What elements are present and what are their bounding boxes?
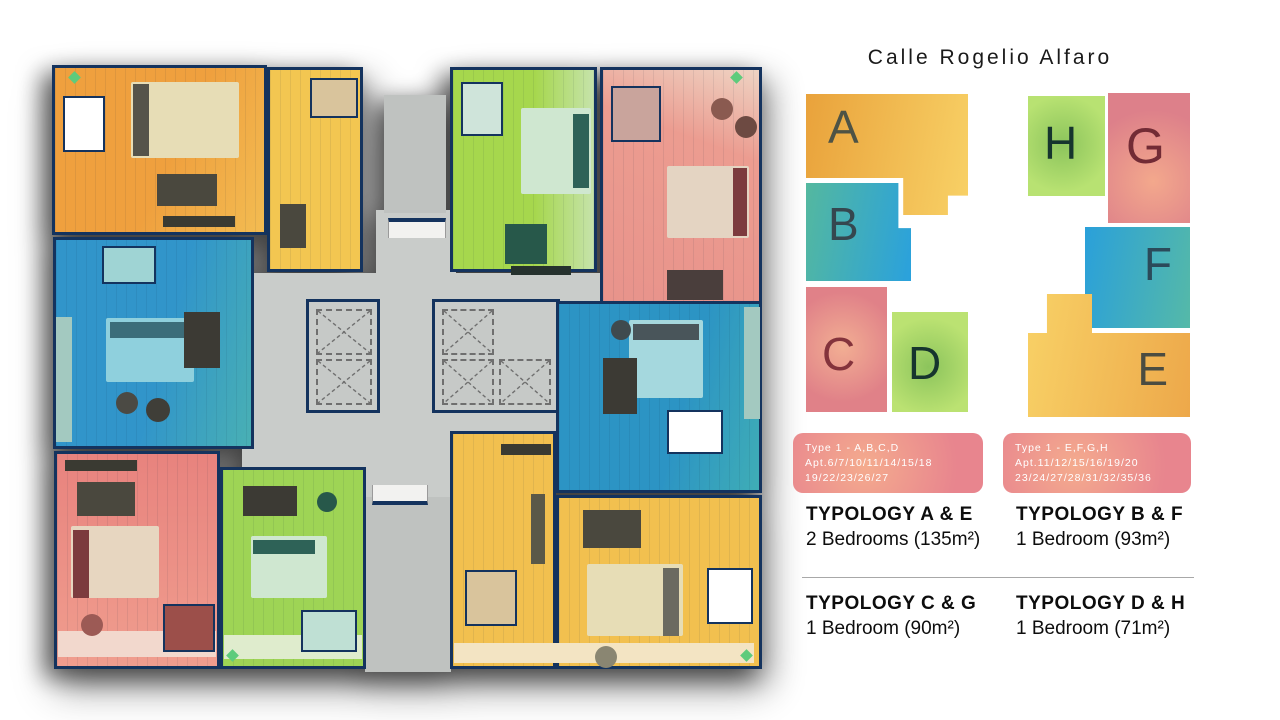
type-badge-efgh: Type 1 - E,F,G,H Apt.11/12/15/16/19/20 2… [1003,433,1191,493]
apartment-a-yellow-wing [267,67,363,272]
badge-line: Apt.11/12/15/16/19/20 [1015,456,1191,471]
sofa [73,530,89,598]
bed [461,82,503,136]
bed [707,568,753,624]
stairs-bottom [365,497,451,672]
elevator [316,309,372,355]
typology-divider [802,577,1194,578]
typology-d-h: TYPOLOGY D & H 1 Bedroom (71m²) [1016,593,1231,640]
typology-title: TYPOLOGY C & G [806,593,1021,615]
desk [280,204,306,248]
legend-block-f: F [1085,227,1190,328]
typology-b-f: TYPOLOGY B & F 1 Bedroom (93m²) [1016,504,1231,551]
legend-letter-b: B [828,201,859,247]
balcony-b [56,317,72,442]
legend-block-h: H [1028,96,1105,196]
sofa [110,322,184,338]
armchair [735,116,757,138]
armchair [146,398,170,422]
badge-line: Type 1 - E,F,G,H [1015,441,1191,456]
elevator [316,359,372,405]
legend-letter-e: E [1137,346,1168,392]
legend-letter-g: G [1126,121,1165,171]
armchair [81,614,103,636]
badge-line: 23/24/27/28/31/32/35/36 [1015,471,1191,486]
sofa [573,114,589,188]
badge-line: 19/22/23/26/27 [805,471,983,486]
typology-title: TYPOLOGY D & H [1016,593,1231,615]
apartment-g-region [600,67,762,305]
legend-letter-d: D [908,340,941,386]
legend-letter-h: H [1044,120,1077,166]
sofa [133,84,149,156]
bed [465,570,517,626]
typology-title: TYPOLOGY B & F [1016,504,1231,526]
sofa [663,568,679,636]
apartment-b-region [53,237,254,449]
bed [63,96,105,152]
badge-line: Type 1 - A,B,C,D [805,441,983,456]
typology-detail: 2 Bedrooms (135m²) [806,529,1021,551]
elevator-bank-left [306,299,380,413]
dining-table [157,174,217,206]
apartment-a-region [52,65,267,235]
typology-detail: 1 Bedroom (71m²) [1016,618,1231,640]
legend-block-c: C [806,287,887,412]
type-badge-abcd: Type 1 - A,B,C,D Apt.6/7/10/11/14/15/18 … [793,433,983,493]
bed [611,86,661,142]
apartment-f-region [556,301,762,493]
kitchen-counter [501,444,551,455]
dining-table [603,358,637,414]
bed [163,604,215,652]
dining-table [505,224,547,264]
legend-letter-a: A [828,104,859,150]
legend-letter-f: F [1144,241,1172,287]
apartment-e-left-region [450,431,556,669]
sofa [733,168,747,236]
kitchen-counter [511,266,571,275]
legend-block-g: G [1108,93,1190,223]
typology-detail: 1 Bedroom (90m²) [806,618,1021,640]
armchair [611,320,631,340]
elevator [442,359,494,405]
dining-table [243,486,297,516]
kitchen-counter [163,216,235,227]
armchair [317,492,337,512]
balcony-f [744,307,760,419]
legend-block-b: B [806,183,911,281]
armchair [595,646,617,668]
typology-detail: 1 Bedroom (93m²) [1016,529,1231,551]
badge-line: Apt.6/7/10/11/14/15/18 [805,456,983,471]
street-name-title: Calle Rogelio Alfaro [790,46,1190,70]
dining-table [77,482,135,516]
corridor-cabinet-bottom [372,485,428,505]
sofa [253,540,315,554]
armchair [711,98,733,120]
floorplan [42,55,764,673]
bed [102,246,156,284]
dining-table [583,510,641,548]
elevator-bank-right [432,299,560,413]
armchair [116,392,138,414]
corridor-cabinet-top [388,218,446,238]
bed [310,78,358,118]
dining-table [667,270,723,300]
kitchen-counter [65,460,137,471]
apartment-h-region [450,67,597,272]
dining-table [184,312,220,368]
stairs-top [384,95,446,213]
elevator [499,359,551,405]
typology-title: TYPOLOGY A & E [806,504,1021,526]
typology-c-g: TYPOLOGY C & G 1 Bedroom (90m²) [806,593,1021,640]
elevator [442,309,494,355]
bed [301,610,357,652]
sofa [633,324,699,340]
legend-letter-c: C [822,331,855,377]
legend-block-d: D [892,312,968,412]
bed [667,410,723,454]
typology-a-e: TYPOLOGY A & E 2 Bedrooms (135m²) [806,504,1021,551]
wardrobe [531,494,545,564]
